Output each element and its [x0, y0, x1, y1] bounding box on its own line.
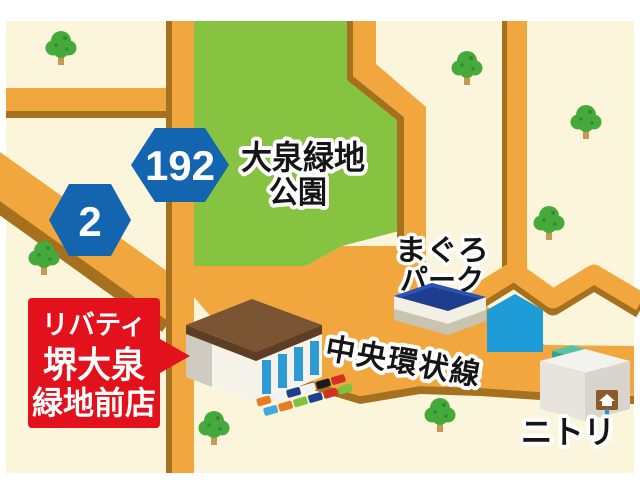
shutter-stripe [262, 360, 271, 394]
park-label-line2: 公園 [269, 175, 327, 211]
top-road [6, 88, 174, 111]
maguro-park-label-line1: まぐろ [395, 233, 489, 267]
north-road-shadow [502, 21, 507, 271]
store-sign-line2: 堺大泉 [43, 345, 145, 386]
shutter-stripe [310, 341, 319, 375]
store-location-map: 192 2 大泉緑地 公園 まぐろ パーク [0, 0, 640, 480]
route-number: 192 [145, 142, 215, 189]
store-sign-line1: リバティ [42, 310, 146, 341]
nitori-label: ニトリ [521, 413, 615, 451]
north-road [507, 21, 527, 273]
park-label-line1: 大泉緑地 [241, 138, 365, 177]
shutter-stripe [278, 354, 287, 388]
map-canvas: 192 2 大泉緑地 公園 まぐろ パーク [0, 0, 640, 480]
store-sign-line3: 緑地前店 [32, 384, 156, 422]
main-vertical-road-shadow [166, 21, 172, 473]
route-number: 2 [78, 198, 101, 245]
top-road-shadow [6, 111, 174, 118]
main-vertical-road [172, 21, 194, 473]
shutter-stripe [294, 347, 303, 381]
